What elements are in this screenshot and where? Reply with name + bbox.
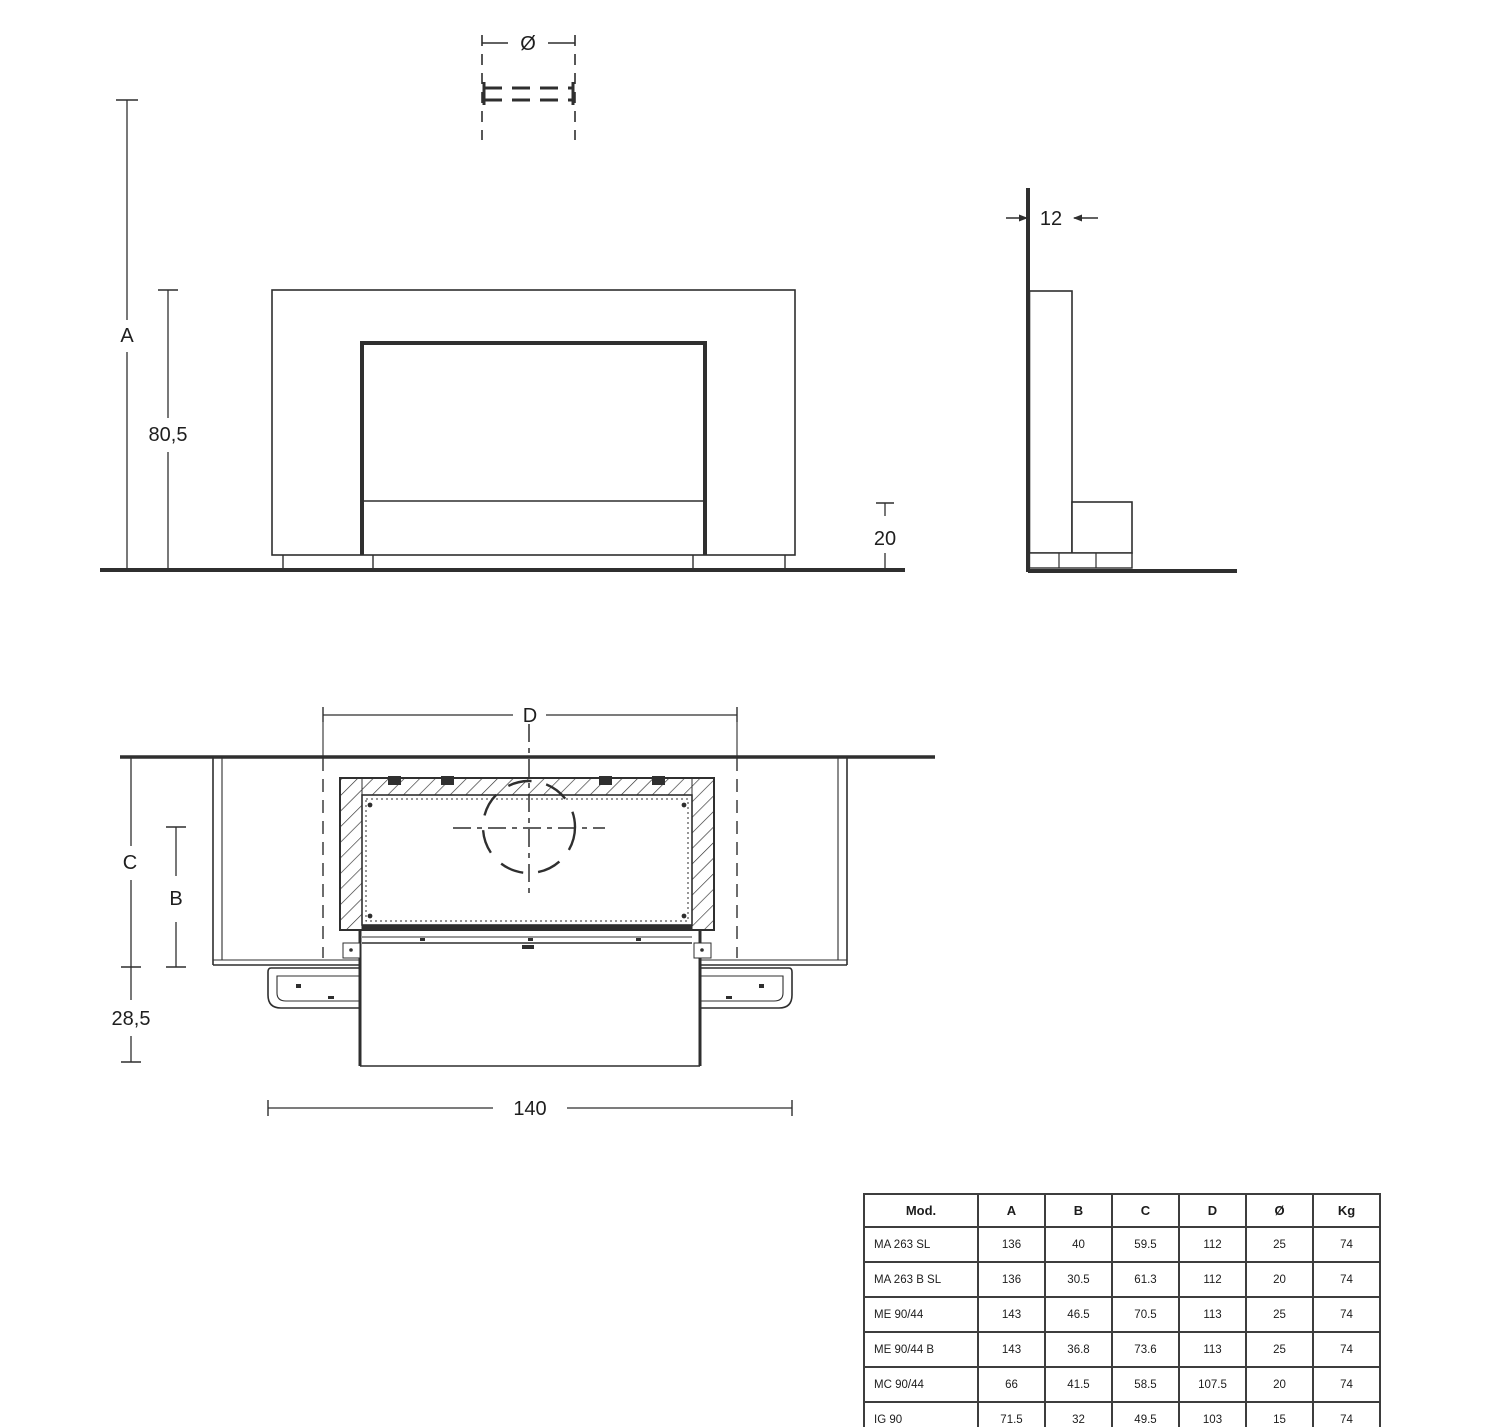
value-cell: 49.5 — [1112, 1402, 1179, 1427]
value-cell: 59.5 — [1112, 1227, 1179, 1262]
value-cell: 74 — [1313, 1262, 1380, 1297]
value-cell: 71.5 — [978, 1402, 1045, 1427]
value-cell: 46.5 — [1045, 1297, 1112, 1332]
table-row: MC 90/44 66 41.5 58.5 107.5 20 74 — [864, 1367, 1380, 1402]
model-cell: IG 90 — [864, 1402, 978, 1427]
col-header-c: C — [1112, 1194, 1179, 1227]
value-cell: 25 — [1246, 1227, 1313, 1262]
table-row: ME 90/44 B 143 36.8 73.6 113 25 74 — [864, 1332, 1380, 1367]
value-cell: 20 — [1246, 1367, 1313, 1402]
value-cell: 40 — [1045, 1227, 1112, 1262]
model-cell: MA 263 SL — [864, 1227, 978, 1262]
value-cell: 112 — [1179, 1227, 1246, 1262]
value-cell: 143 — [978, 1297, 1045, 1332]
table-row: MA 263 B SL 136 30.5 61.3 112 20 74 — [864, 1262, 1380, 1297]
col-header-kg: Kg — [1313, 1194, 1380, 1227]
dim-label-total-width: 140 — [513, 1098, 546, 1120]
value-cell: 136 — [978, 1262, 1045, 1297]
value-cell: 74 — [1313, 1402, 1380, 1427]
value-cell: 30.5 — [1045, 1262, 1112, 1297]
dim-label-opening-width: D — [523, 705, 537, 727]
dim-label-firebox-depth: B — [169, 888, 182, 910]
value-cell: 41.5 — [1045, 1367, 1112, 1402]
value-cell: 25 — [1246, 1297, 1313, 1332]
dim-label-base-height: 20 — [874, 528, 896, 550]
col-header-a: A — [978, 1194, 1045, 1227]
model-cell: ME 90/44 — [864, 1297, 978, 1332]
dim-label-hearth-depth: 28,5 — [112, 1008, 151, 1030]
value-cell: 143 — [978, 1332, 1045, 1367]
value-cell: 66 — [978, 1367, 1045, 1402]
value-cell: 74 — [1313, 1227, 1380, 1262]
col-header-diameter: Ø — [1246, 1194, 1313, 1227]
front-view — [100, 100, 905, 570]
dim-label-total-depth: C — [123, 852, 137, 874]
value-cell: 107.5 — [1179, 1367, 1246, 1402]
value-cell: 32 — [1045, 1402, 1112, 1427]
value-cell: 15 — [1246, 1402, 1313, 1427]
value-cell: 20 — [1246, 1262, 1313, 1297]
technical-drawing-page: Ø A 80,5 20 — [0, 0, 1500, 1427]
value-cell: 112 — [1179, 1262, 1246, 1297]
value-cell: 36.8 — [1045, 1332, 1112, 1367]
value-cell: 74 — [1313, 1297, 1380, 1332]
value-cell: 74 — [1313, 1332, 1380, 1367]
model-cell: MC 90/44 — [864, 1367, 978, 1402]
plan-view — [120, 707, 935, 1116]
table-row: ME 90/44 143 46.5 70.5 113 25 74 — [864, 1297, 1380, 1332]
col-header-d: D — [1179, 1194, 1246, 1227]
value-cell: 74 — [1313, 1367, 1380, 1402]
dim-label-body-height: 80,5 — [149, 424, 188, 446]
table-row: MA 263 SL 136 40 59.5 112 25 74 — [864, 1227, 1380, 1262]
dim-label-total-height: A — [120, 325, 134, 347]
side-view — [1006, 188, 1237, 572]
value-cell: 61.3 — [1112, 1262, 1179, 1297]
table-header-row: Mod. A B C D Ø Kg — [864, 1194, 1380, 1227]
col-header-mod: Mod. — [864, 1194, 978, 1227]
col-header-b: B — [1045, 1194, 1112, 1227]
value-cell: 103 — [1179, 1402, 1246, 1427]
model-cell: ME 90/44 B — [864, 1332, 978, 1367]
value-cell: 70.5 — [1112, 1297, 1179, 1332]
table-row: IG 90 71.5 32 49.5 103 15 74 — [864, 1402, 1380, 1427]
value-cell: 113 — [1179, 1297, 1246, 1332]
model-cell: MA 263 B SL — [864, 1262, 978, 1297]
value-cell: 73.6 — [1112, 1332, 1179, 1367]
value-cell: 25 — [1246, 1332, 1313, 1367]
value-cell: 58.5 — [1112, 1367, 1179, 1402]
dimensions-table: Mod. A B C D Ø Kg MA 263 SL 136 40 59.5 … — [863, 1193, 1381, 1427]
value-cell: 113 — [1179, 1332, 1246, 1367]
value-cell: 136 — [978, 1227, 1045, 1262]
dim-label-side-depth: 12 — [1040, 208, 1062, 230]
dim-label-flue-diameter: Ø — [520, 33, 536, 55]
